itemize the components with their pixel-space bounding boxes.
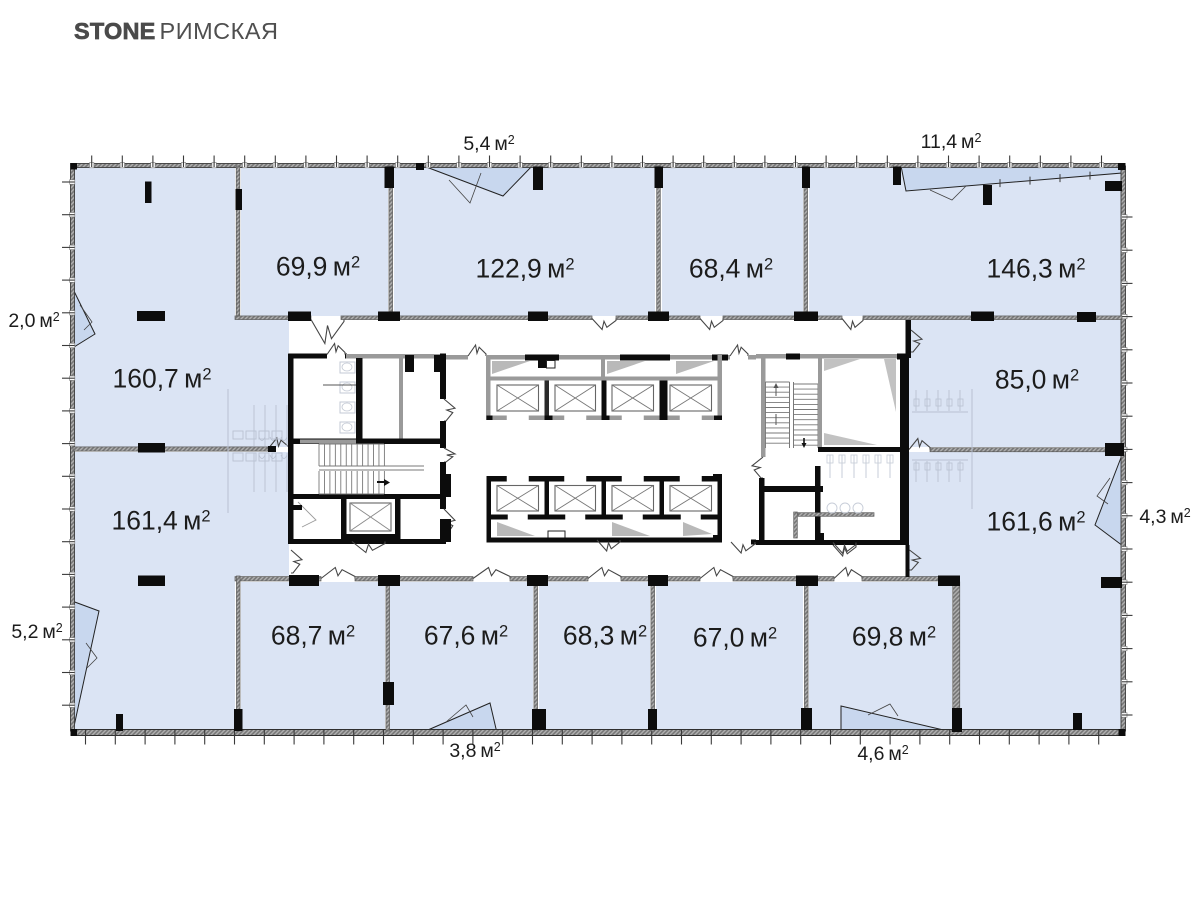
svg-text:146,3 м2: 146,3 м2 xyxy=(986,254,1085,284)
svg-text:5,4 м2: 5,4 м2 xyxy=(463,133,514,155)
svg-text:4,6 м2: 4,6 м2 xyxy=(857,743,908,765)
svg-text:161,4 м2: 161,4 м2 xyxy=(111,506,210,536)
svg-text:68,7 м2: 68,7 м2 xyxy=(271,621,355,651)
svg-text:68,3 м2: 68,3 м2 xyxy=(563,621,647,651)
svg-text:69,8 м2: 69,8 м2 xyxy=(852,622,936,652)
svg-text:3,8 м2: 3,8 м2 xyxy=(449,740,500,762)
svg-text:5,2 м2: 5,2 м2 xyxy=(11,621,62,643)
svg-text:85,0 м2: 85,0 м2 xyxy=(995,365,1079,395)
svg-text:67,0 м2: 67,0 м2 xyxy=(693,623,777,653)
svg-text:161,6 м2: 161,6 м2 xyxy=(986,507,1085,537)
svg-text:4,3 м2: 4,3 м2 xyxy=(1139,506,1190,528)
svg-text:2,0 м2: 2,0 м2 xyxy=(8,310,59,332)
svg-text:67,6 м2: 67,6 м2 xyxy=(424,621,508,651)
svg-text:11,4 м2: 11,4 м2 xyxy=(921,131,982,153)
svg-text:160,7 м2: 160,7 м2 xyxy=(112,364,211,394)
svg-text:69,9 м2: 69,9 м2 xyxy=(276,252,360,282)
svg-text:68,4 м2: 68,4 м2 xyxy=(689,254,773,284)
svg-text:122,9 м2: 122,9 м2 xyxy=(475,254,574,284)
